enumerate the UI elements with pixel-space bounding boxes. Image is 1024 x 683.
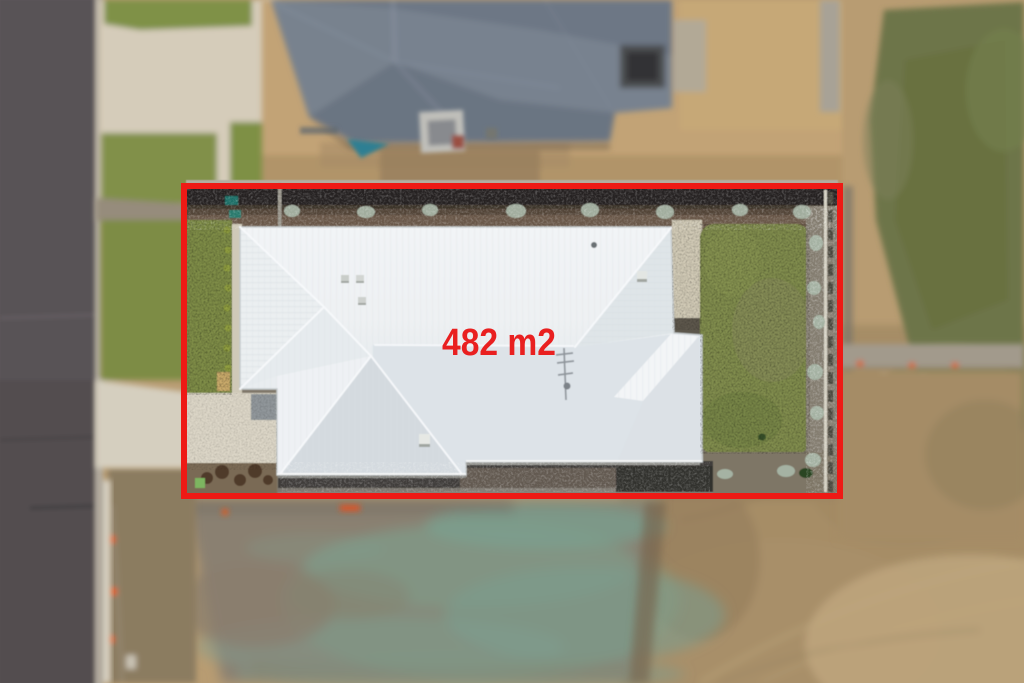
svg-text:482 m2: 482 m2: [442, 322, 556, 364]
